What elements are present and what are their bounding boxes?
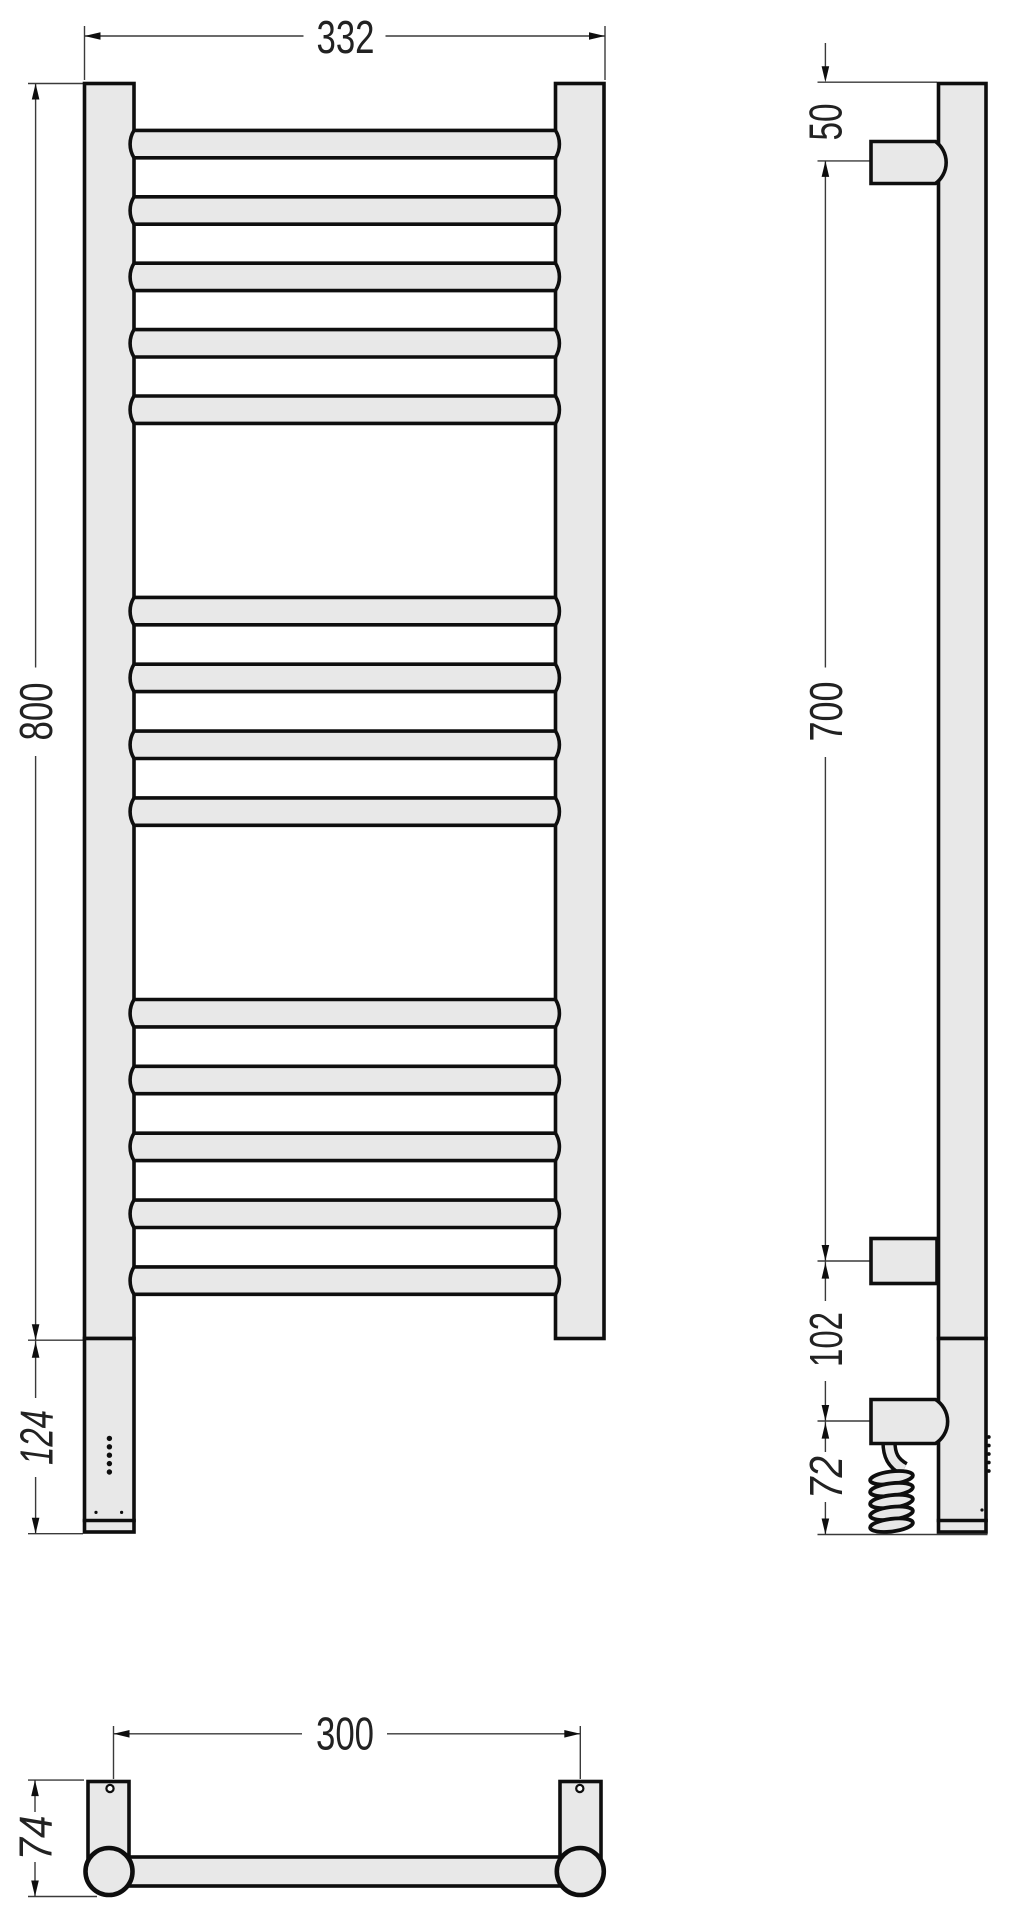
svg-text:74: 74 xyxy=(9,1816,61,1861)
svg-text:300: 300 xyxy=(316,1708,374,1760)
svg-text:800: 800 xyxy=(10,683,62,741)
svg-text:700: 700 xyxy=(800,682,852,742)
svg-text:332: 332 xyxy=(317,11,375,63)
svg-text:50: 50 xyxy=(800,104,852,141)
svg-text:72: 72 xyxy=(800,1456,852,1499)
svg-text:102: 102 xyxy=(800,1312,852,1367)
svg-text:124: 124 xyxy=(10,1410,62,1465)
